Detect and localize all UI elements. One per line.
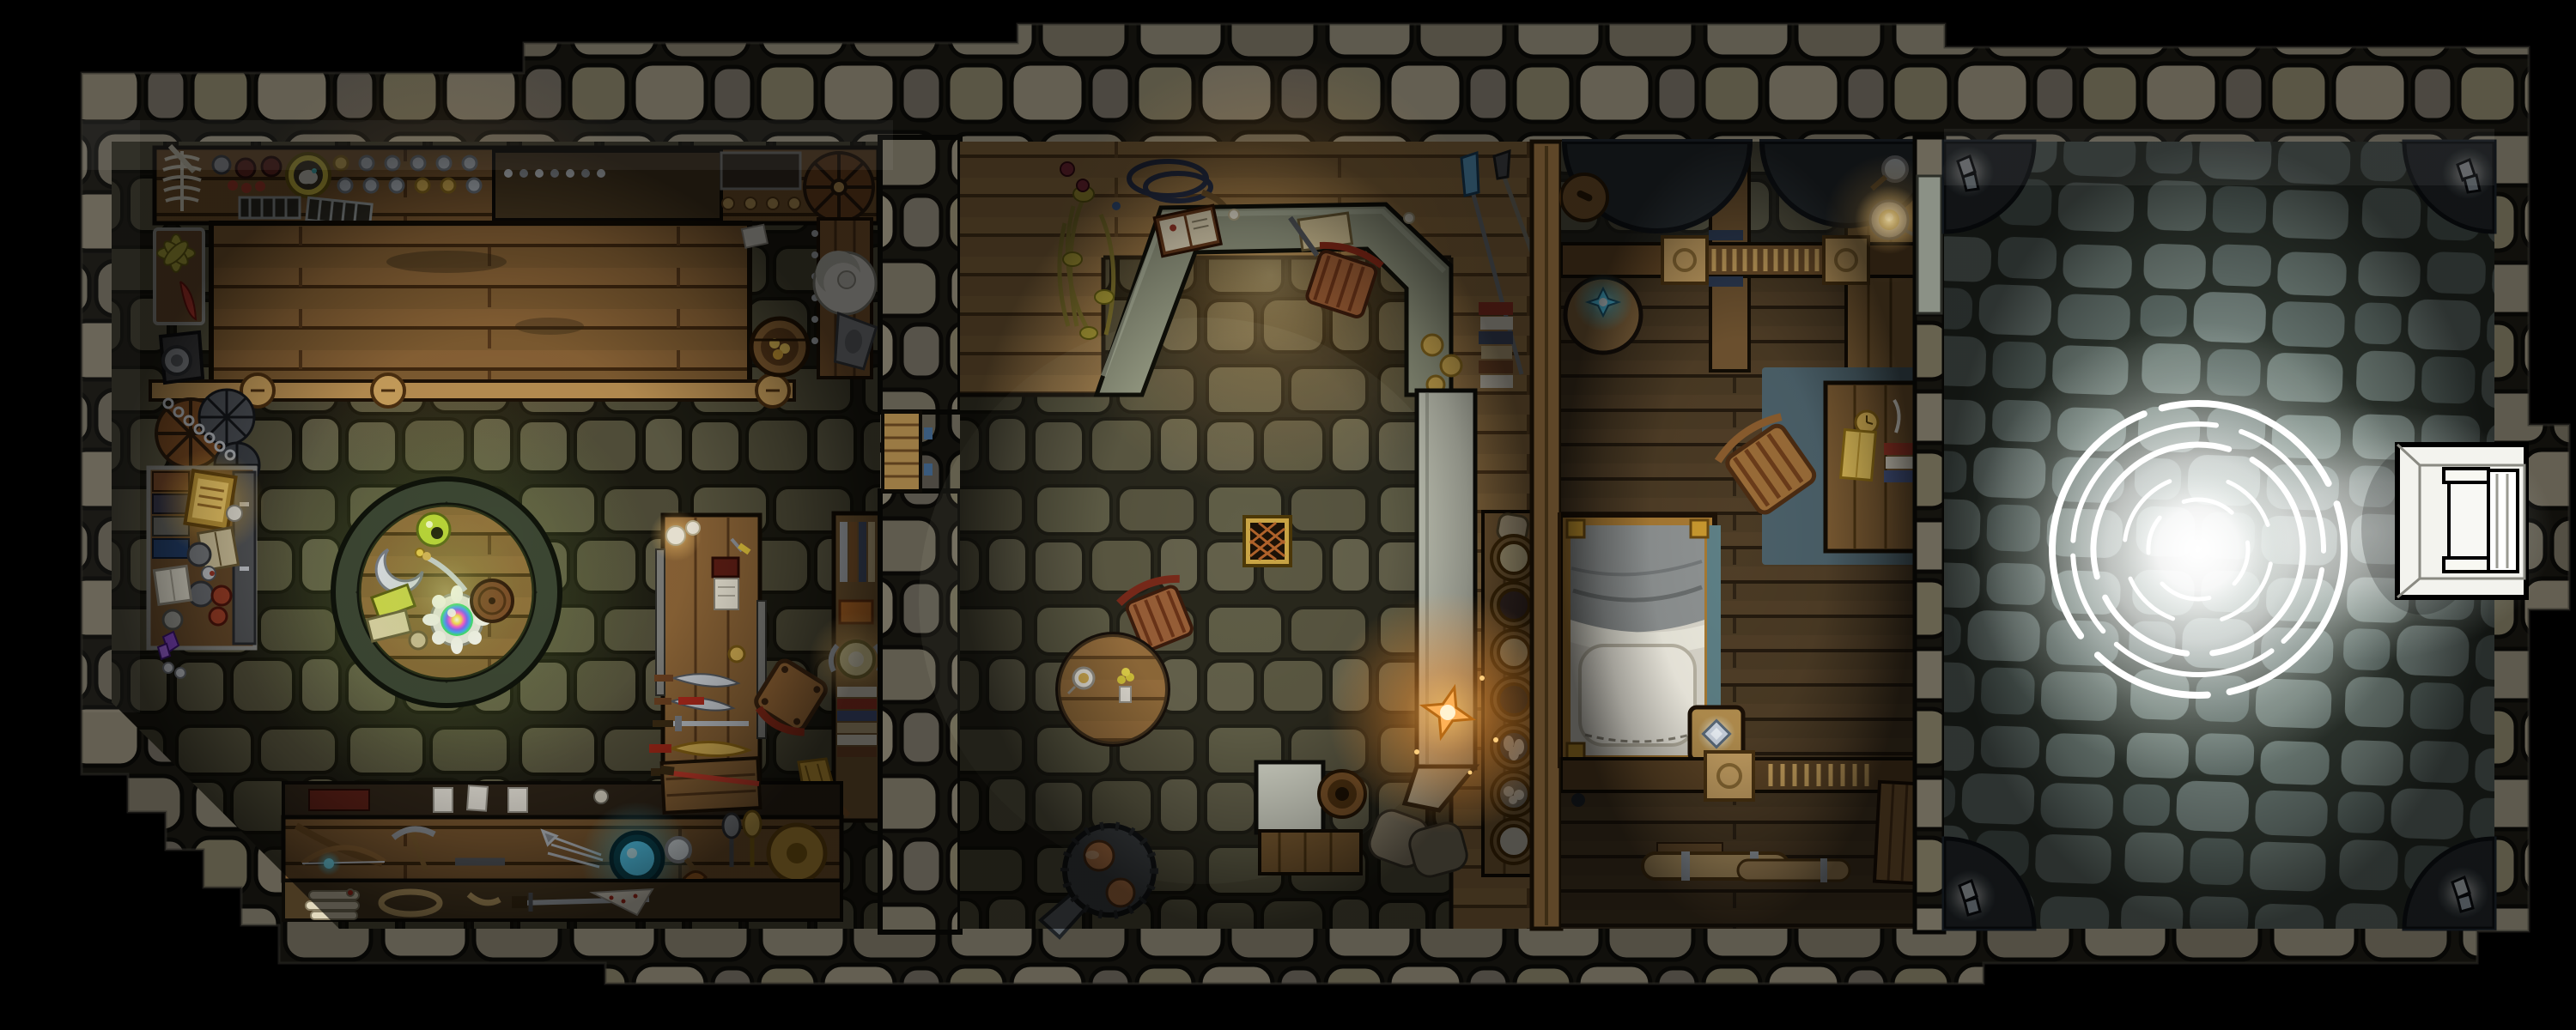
- quarters-vignette: [1561, 142, 1915, 929]
- area-courtyard: [1942, 142, 2555, 929]
- battle-map: [0, 0, 2576, 1030]
- area-shop: [112, 51, 903, 929]
- portal-seat-icon: [2444, 469, 2518, 572]
- wall-quarters-courtyard: [1915, 137, 1944, 932]
- battle-map-stage: [0, 0, 2576, 1030]
- wall-light-band: [82, 120, 140, 712]
- portal-dais: [2361, 443, 2526, 615]
- area-quarters: [1560, 142, 1953, 929]
- area-common-room: [919, 51, 1571, 937]
- wall-light-band: [1944, 129, 2494, 185]
- wall-light-band: [82, 120, 893, 170]
